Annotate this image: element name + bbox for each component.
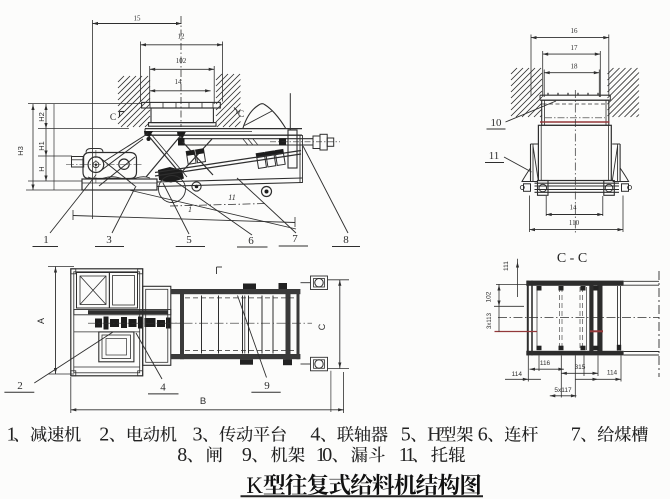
svg-text:5: 5 bbox=[401, 424, 411, 446]
svg-text:110: 110 bbox=[569, 219, 580, 227]
svg-text:114: 114 bbox=[607, 370, 618, 377]
svg-text:102: 102 bbox=[176, 57, 187, 65]
svg-text:102: 102 bbox=[486, 291, 493, 302]
svg-text:16: 16 bbox=[571, 27, 579, 35]
svg-text:C: C bbox=[317, 323, 327, 330]
svg-text:11: 11 bbox=[228, 193, 235, 202]
svg-text:2: 2 bbox=[17, 380, 23, 392]
svg-text:3: 3 bbox=[106, 234, 112, 246]
svg-text:9: 9 bbox=[242, 444, 252, 466]
svg-text:9: 9 bbox=[264, 380, 270, 392]
svg-text:5x117: 5x117 bbox=[554, 387, 572, 394]
svg-text:11: 11 bbox=[489, 150, 500, 162]
svg-text:14: 14 bbox=[570, 204, 578, 212]
svg-text:2: 2 bbox=[99, 424, 109, 446]
svg-text:1: 1 bbox=[405, 444, 415, 466]
svg-text:6: 6 bbox=[248, 235, 254, 247]
svg-text:H: H bbox=[427, 424, 441, 446]
svg-text:14: 14 bbox=[175, 78, 183, 86]
svg-text:C - C: C - C bbox=[557, 251, 587, 266]
svg-text:1: 1 bbox=[188, 205, 192, 214]
svg-text:1: 1 bbox=[7, 424, 17, 446]
svg-text:K: K bbox=[246, 473, 263, 498]
svg-text:17: 17 bbox=[571, 44, 579, 52]
svg-text:1: 1 bbox=[43, 234, 49, 246]
svg-text:116: 116 bbox=[540, 360, 551, 367]
svg-text:15: 15 bbox=[134, 15, 142, 23]
svg-text:C: C bbox=[110, 113, 116, 123]
svg-text:5: 5 bbox=[186, 234, 192, 246]
svg-text:315: 315 bbox=[575, 364, 586, 371]
svg-text:10: 10 bbox=[491, 117, 503, 129]
svg-text:8: 8 bbox=[343, 234, 349, 246]
svg-text:4: 4 bbox=[310, 424, 320, 446]
svg-text:H2: H2 bbox=[37, 112, 46, 122]
svg-text:8: 8 bbox=[177, 444, 187, 466]
svg-text:B: B bbox=[200, 396, 206, 407]
svg-text:114: 114 bbox=[512, 371, 523, 378]
svg-text:0: 0 bbox=[322, 444, 332, 466]
svg-text:A: A bbox=[36, 318, 46, 324]
svg-text:H: H bbox=[37, 166, 46, 171]
svg-text:7: 7 bbox=[571, 424, 581, 446]
svg-text:7: 7 bbox=[292, 233, 298, 245]
svg-text:6: 6 bbox=[478, 424, 488, 446]
svg-text:3: 3 bbox=[193, 424, 203, 446]
svg-text:18: 18 bbox=[571, 63, 579, 71]
svg-text:111: 111 bbox=[503, 261, 510, 271]
svg-text:12: 12 bbox=[178, 33, 186, 41]
svg-text:C: C bbox=[238, 110, 244, 120]
svg-text:4: 4 bbox=[160, 382, 166, 394]
svg-text:H1: H1 bbox=[37, 141, 46, 151]
svg-text:H3: H3 bbox=[16, 146, 25, 156]
svg-text:3x113: 3x113 bbox=[487, 312, 493, 329]
